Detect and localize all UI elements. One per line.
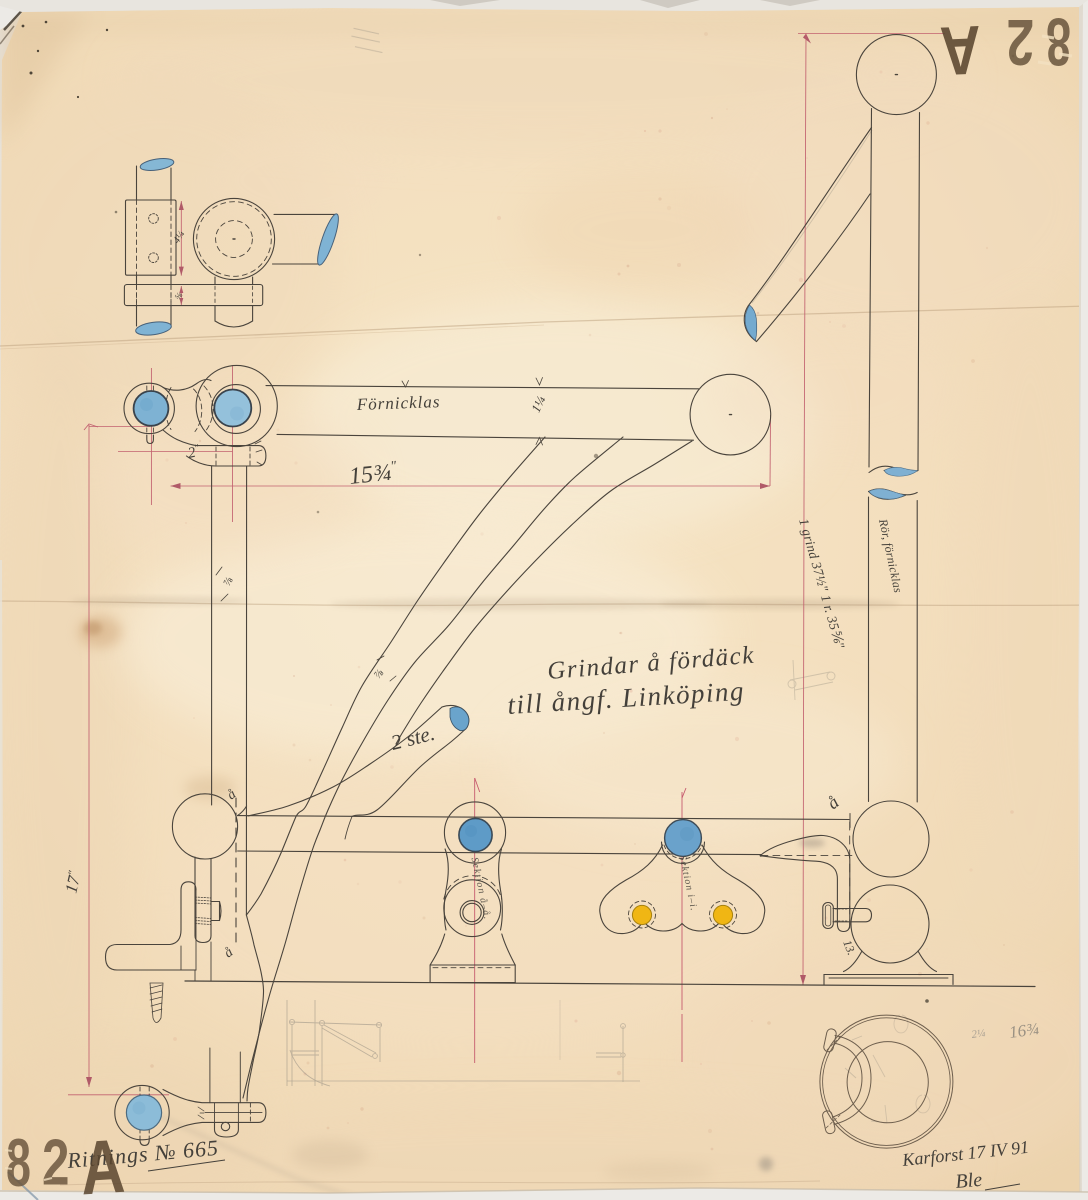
svg-text:2: 2 (42, 1127, 69, 1199)
svg-text:2¼: 2¼ (971, 1027, 986, 1041)
svg-text:2: 2 (1007, 5, 1034, 77)
svg-text:8: 8 (6, 1126, 31, 1200)
svg-text:15¾″: 15¾″ (348, 459, 398, 490)
svg-text:A: A (939, 11, 982, 89)
svg-text:Ble: Ble (955, 1169, 984, 1193)
svg-text:8: 8 (1046, 3, 1071, 79)
svg-text:Förnicklas: Förnicklas (355, 392, 440, 414)
svg-text:A: A (79, 1123, 126, 1200)
